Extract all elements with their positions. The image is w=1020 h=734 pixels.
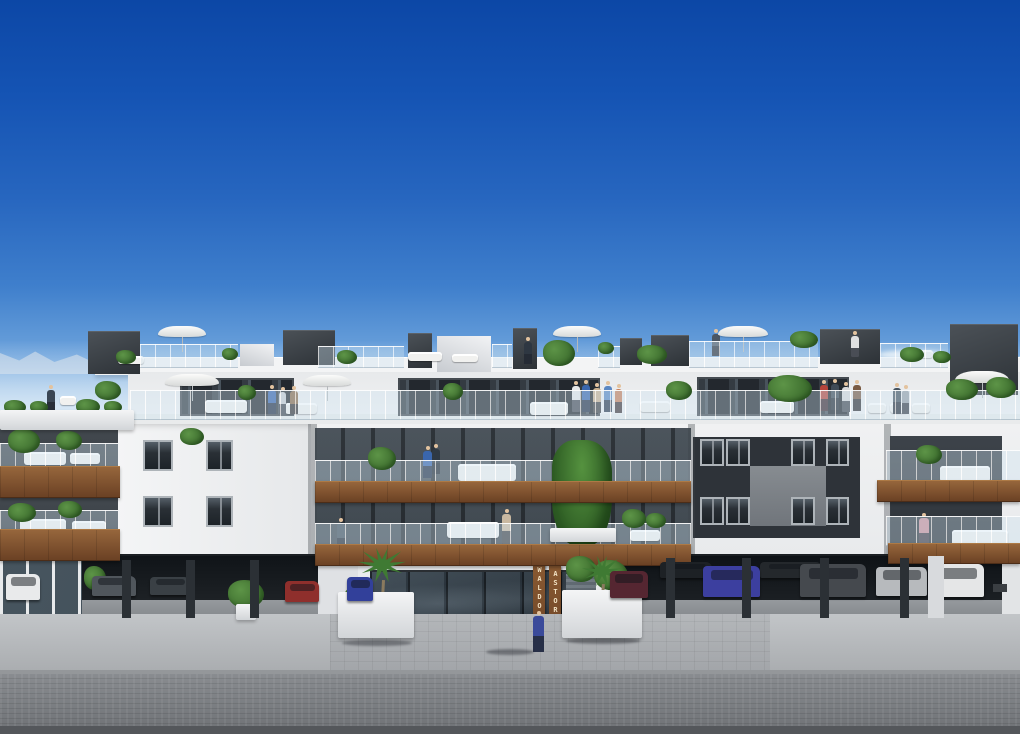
- plant: [900, 347, 924, 362]
- wood-band: [0, 529, 120, 561]
- person: [524, 342, 532, 364]
- pillar: [250, 560, 259, 618]
- pillar: [928, 556, 944, 618]
- sofa: [60, 396, 76, 405]
- window: [791, 439, 815, 466]
- pillar: [742, 558, 751, 618]
- shadow: [566, 638, 640, 644]
- plant: [622, 509, 646, 528]
- plant: [637, 345, 667, 364]
- sofa: [408, 352, 442, 361]
- roof-box: [820, 329, 880, 364]
- plant: [933, 351, 951, 363]
- pillar: [186, 560, 195, 618]
- person: [47, 390, 55, 412]
- plant: [56, 431, 82, 450]
- plant: [768, 375, 812, 402]
- planter: [0, 410, 134, 430]
- window: [726, 439, 750, 466]
- wood-band: [877, 480, 1020, 502]
- plant: [598, 342, 614, 354]
- wood-band: [315, 481, 691, 503]
- car: [6, 574, 40, 600]
- car: [150, 577, 190, 595]
- pillar: [900, 558, 909, 618]
- plant: [58, 501, 82, 518]
- glass-rail: [492, 344, 512, 368]
- plant: [95, 381, 121, 400]
- shadow: [342, 640, 412, 646]
- planter: [550, 528, 616, 542]
- car: [285, 581, 319, 602]
- plant: [238, 385, 256, 400]
- window: [206, 496, 233, 527]
- roof-box: [408, 333, 432, 368]
- plant: [337, 350, 357, 364]
- car: [800, 564, 866, 597]
- plant: [543, 340, 575, 366]
- window: [143, 496, 173, 527]
- window: [726, 497, 750, 525]
- umbrella: [553, 326, 601, 337]
- street-edge: [0, 726, 1020, 734]
- car: [610, 571, 648, 598]
- shadow: [486, 649, 534, 655]
- window: [700, 497, 724, 525]
- window: [826, 439, 849, 466]
- window: [206, 440, 233, 471]
- plant: [666, 381, 692, 400]
- plant: [916, 445, 942, 464]
- pillar: [666, 558, 675, 618]
- street: [0, 674, 1020, 734]
- plant: [646, 513, 666, 528]
- architectural-render: WALDORF ASTORIA: [0, 0, 1020, 734]
- glass-rail: [130, 390, 1020, 420]
- sofa: [452, 354, 478, 362]
- plant: [986, 377, 1016, 398]
- pillar: [122, 560, 131, 618]
- plant: [180, 428, 204, 445]
- window: [791, 497, 815, 525]
- plant: [116, 350, 136, 364]
- white-box: [240, 344, 274, 366]
- window: [700, 439, 724, 466]
- plant: [8, 503, 36, 522]
- plant: [443, 383, 463, 400]
- umbrella: [718, 326, 768, 337]
- plant: [946, 379, 978, 400]
- plant: [222, 348, 238, 360]
- wall-vent: [993, 584, 1007, 592]
- plant: [8, 429, 40, 453]
- pillar: [820, 558, 829, 618]
- plant: [368, 447, 396, 470]
- window: [143, 440, 173, 471]
- person: [533, 616, 544, 652]
- plant: [790, 331, 818, 348]
- car: [347, 577, 373, 601]
- window: [826, 497, 849, 525]
- umbrella: [158, 326, 206, 337]
- umbrella: [303, 375, 351, 386]
- glass-rail: [886, 516, 1020, 546]
- wood-band: [0, 466, 120, 498]
- glass-rail: [318, 346, 404, 368]
- glass-rail: [886, 450, 1020, 484]
- car: [703, 566, 760, 597]
- umbrella: [165, 374, 219, 386]
- person: [851, 336, 859, 357]
